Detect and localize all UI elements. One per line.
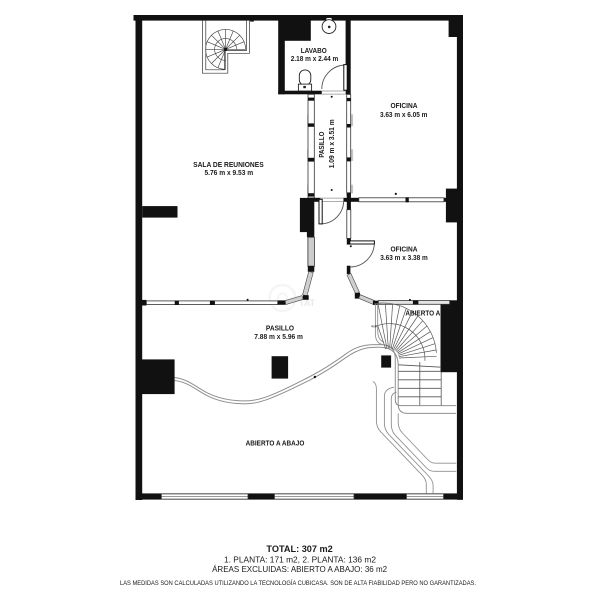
svg-text:1. PLANTA: 171 m2, 2. PLANTA:: 1. PLANTA: 171 m2, 2. PLANTA: 136 m2 — [224, 554, 376, 564]
svg-text:2.18 m x 2.44 m: 2.18 m x 2.44 m — [291, 54, 339, 63]
svg-text:LAS MEDIDAS SON CALCULADAS UTI: LAS MEDIDAS SON CALCULADAS UTILIZANDO LA… — [120, 578, 476, 587]
svg-text:ABIERTO A: ABIERTO A — [405, 309, 440, 318]
svg-text:3.63 m x 6.05 m: 3.63 m x 6.05 m — [380, 110, 428, 119]
svg-text:4x0: 4x0 — [371, 325, 377, 329]
svg-text:ABIERTO A ABAJO: ABIERTO A ABAJO — [246, 439, 305, 448]
svg-text:5.76 m x 9.53 m: 5.76 m x 9.53 m — [204, 168, 253, 177]
svg-text:ÁREAS EXCLUIDAS: ABIERTO A ABA: ÁREAS EXCLUIDAS: ABIERTO A ABAJO: 36 m2 — [212, 564, 387, 574]
svg-text:OFICINA: OFICINA — [390, 101, 417, 110]
svg-text:PASILLO: PASILLO — [317, 132, 326, 158]
svg-text:7.88 m x 5.96 m: 7.88 m x 5.96 m — [254, 332, 303, 341]
svg-text:3.63 m x 3.38 m: 3.63 m x 3.38 m — [380, 253, 428, 262]
svg-text:1.09 m x 3.51 m: 1.09 m x 3.51 m — [327, 119, 336, 168]
